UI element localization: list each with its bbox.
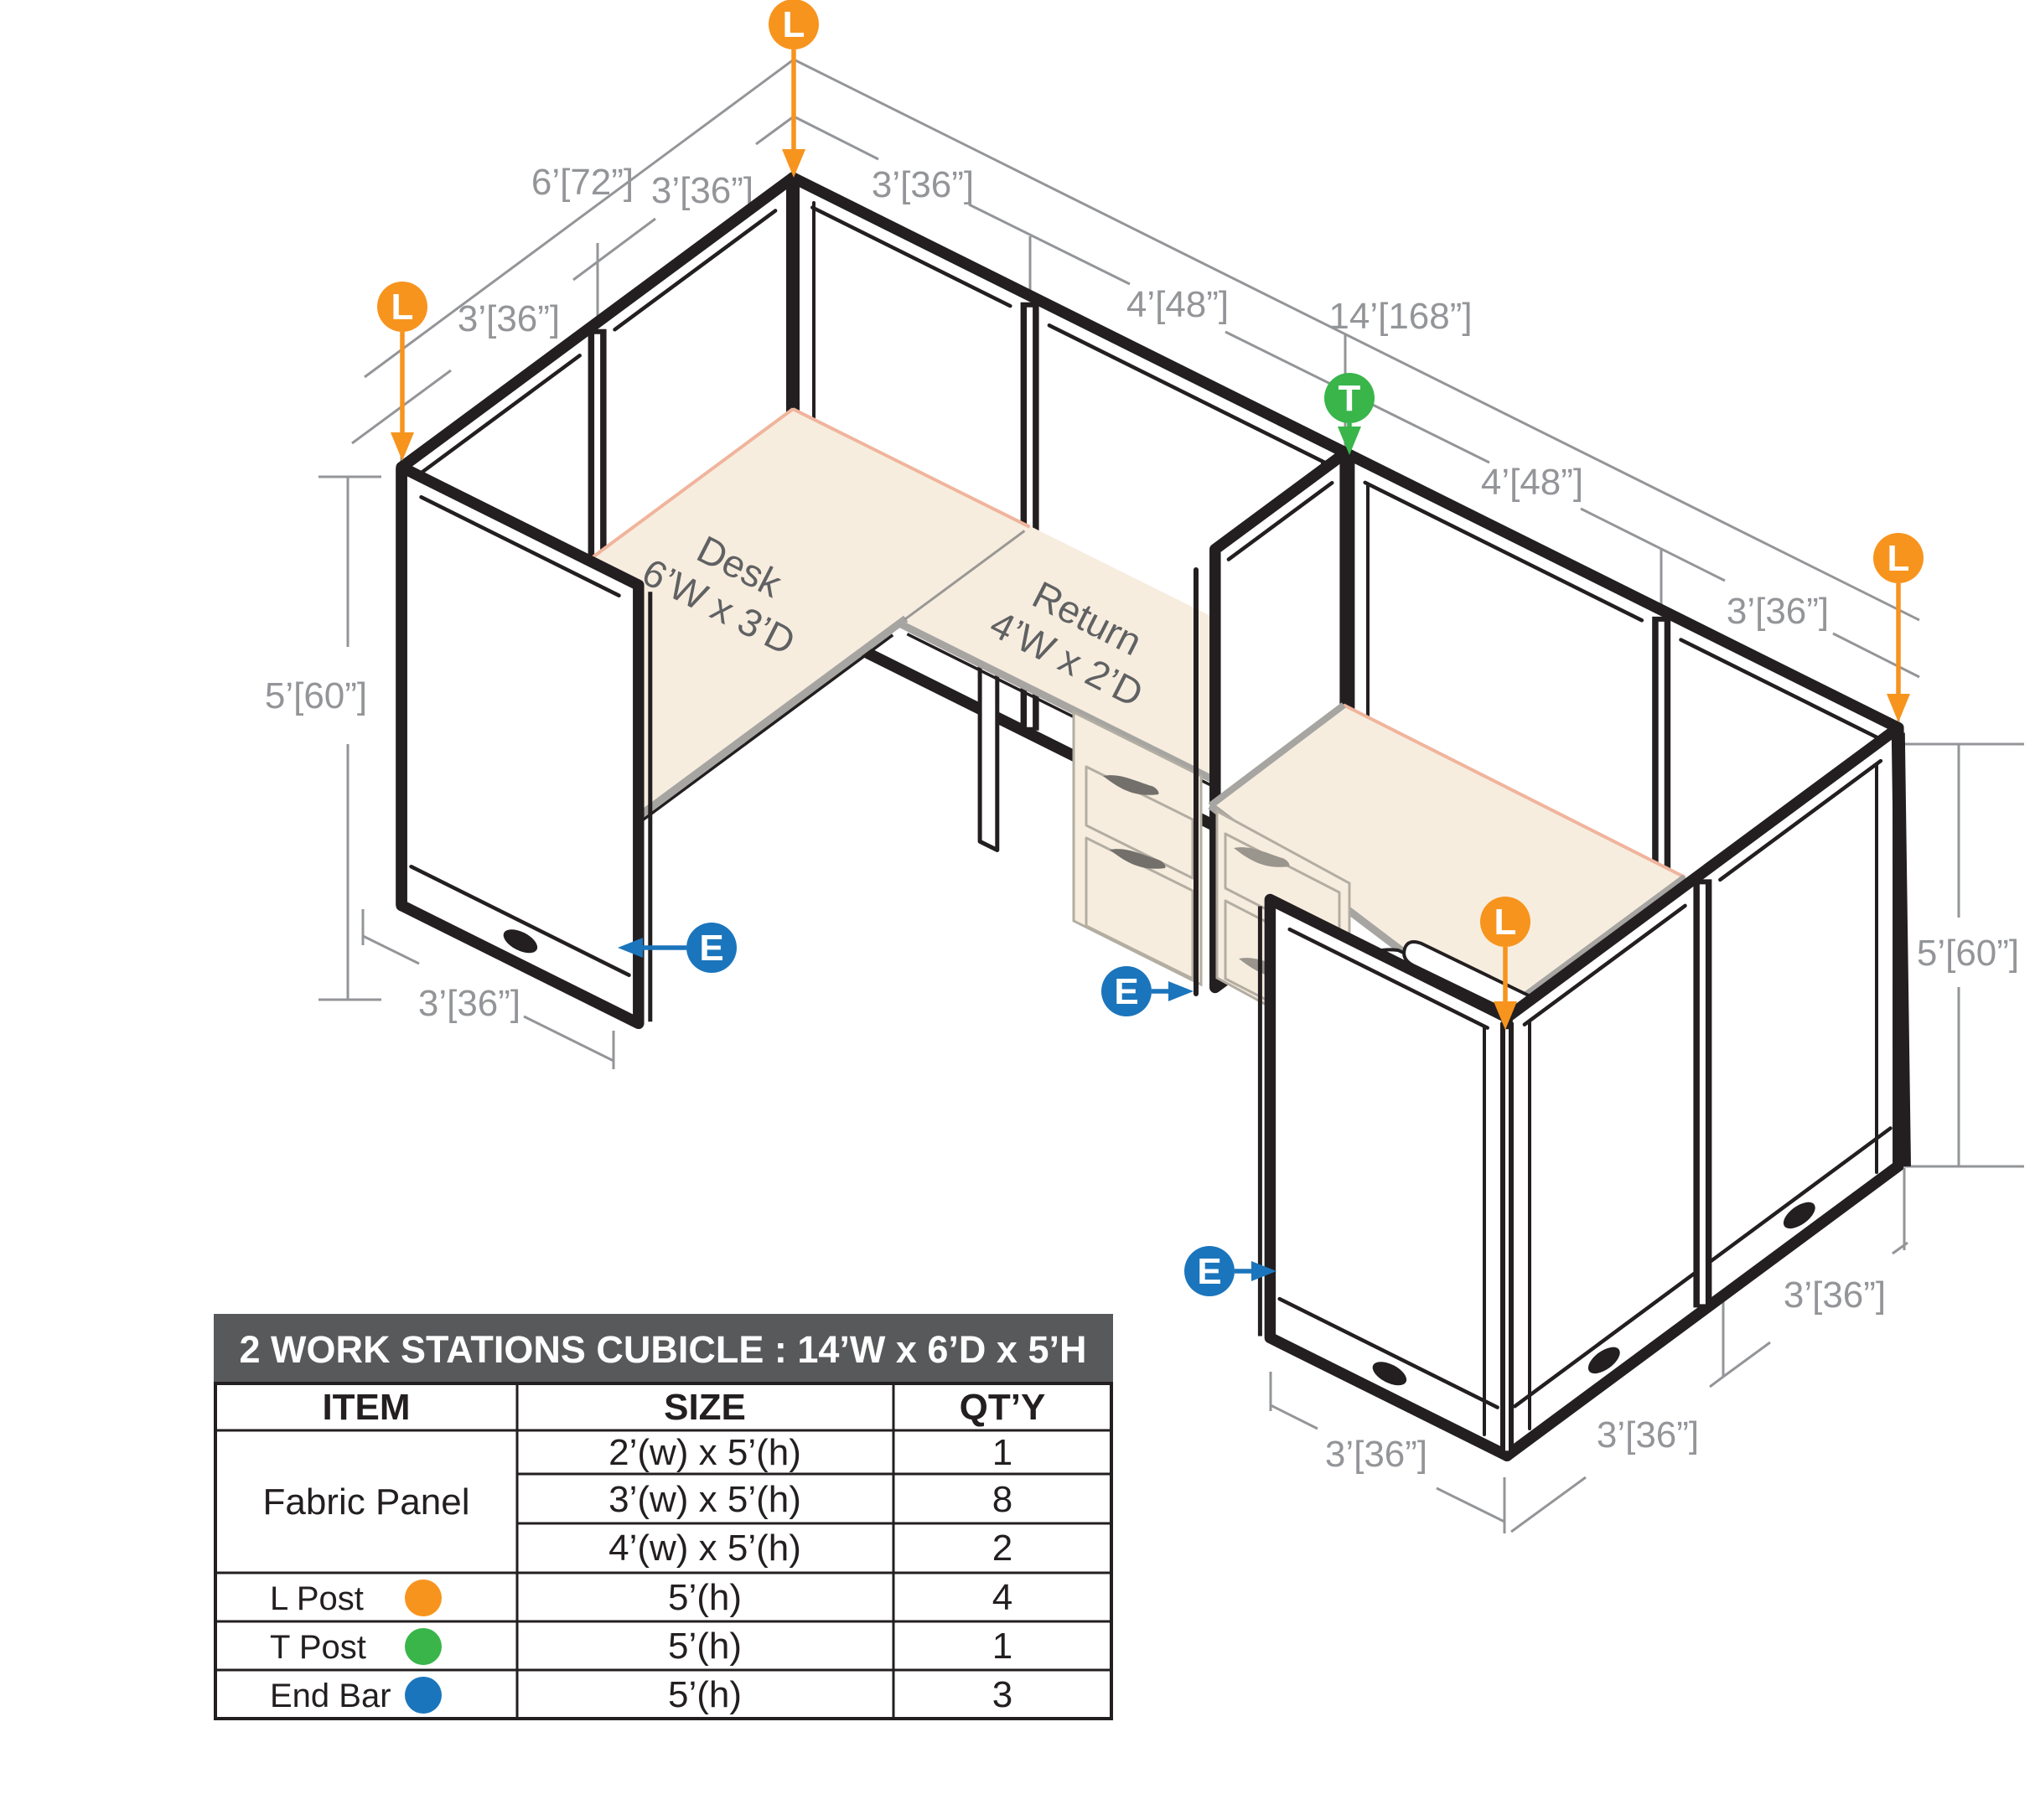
- svg-text:2: 2: [992, 1528, 1012, 1569]
- svg-text:3’[36”]: 3’[36”]: [418, 983, 520, 1024]
- svg-text:3’[36”]: 3’[36”]: [872, 164, 974, 205]
- svg-text:1: 1: [992, 1626, 1012, 1667]
- svg-text:L: L: [1887, 538, 1910, 579]
- svg-text:T: T: [1339, 378, 1361, 419]
- svg-text:L Post: L Post: [270, 1580, 364, 1617]
- svg-text:4’[48”]: 4’[48”]: [1481, 462, 1583, 503]
- svg-text:End Bar: End Bar: [270, 1678, 391, 1714]
- svg-text:2’(w) x 5’(h): 2’(w) x 5’(h): [608, 1432, 801, 1473]
- svg-text:5’[60”]: 5’[60”]: [1917, 933, 2019, 974]
- svg-text:L: L: [783, 4, 805, 45]
- svg-text:3’[36”]: 3’[36”]: [651, 170, 753, 211]
- svg-text:8: 8: [992, 1479, 1012, 1520]
- svg-text:3’[36”]: 3’[36”]: [1784, 1275, 1886, 1316]
- svg-text:T Post: T Post: [270, 1629, 366, 1666]
- svg-text:4’[48”]: 4’[48”]: [1126, 284, 1229, 325]
- svg-text:3’[36”]: 3’[36”]: [1727, 591, 1829, 632]
- svg-text:5’(h): 5’(h): [668, 1674, 742, 1715]
- svg-text:E: E: [1197, 1251, 1221, 1292]
- svg-text:3’(w) x 5’(h): 3’(w) x 5’(h): [608, 1479, 801, 1520]
- svg-text:L: L: [1494, 902, 1517, 943]
- svg-text:1: 1: [992, 1432, 1012, 1473]
- svg-text:14’[168”]: 14’[168”]: [1328, 296, 1472, 337]
- svg-text:E: E: [699, 928, 723, 969]
- svg-text:Fabric Panel: Fabric Panel: [262, 1481, 469, 1523]
- svg-text:3’[36”]: 3’[36”]: [458, 298, 560, 339]
- svg-text:6’[72”]: 6’[72”]: [531, 162, 634, 203]
- svg-text:4’(w) x 5’(h): 4’(w) x 5’(h): [608, 1528, 801, 1569]
- svg-text:QT’Y: QT’Y: [960, 1387, 1046, 1428]
- svg-text:3: 3: [992, 1674, 1012, 1715]
- svg-text:2 WORK STATIONS CUBICLE : 14: 2 WORK STATIONS CUBICLE : 14’W x 6’D x 5…: [240, 1328, 1087, 1371]
- svg-text:4: 4: [992, 1577, 1012, 1618]
- svg-text:L: L: [391, 287, 414, 328]
- svg-text:5’[60”]: 5’[60”]: [265, 675, 367, 716]
- svg-text:3’[36”]: 3’[36”]: [1325, 1434, 1427, 1475]
- svg-text:ITEM: ITEM: [322, 1387, 410, 1428]
- svg-text:3’[36”]: 3’[36”]: [1597, 1414, 1699, 1455]
- svg-text:5’(h): 5’(h): [668, 1577, 742, 1618]
- svg-text:E: E: [1114, 971, 1138, 1012]
- svg-text:5’(h): 5’(h): [668, 1626, 742, 1667]
- svg-text:SIZE: SIZE: [664, 1387, 746, 1428]
